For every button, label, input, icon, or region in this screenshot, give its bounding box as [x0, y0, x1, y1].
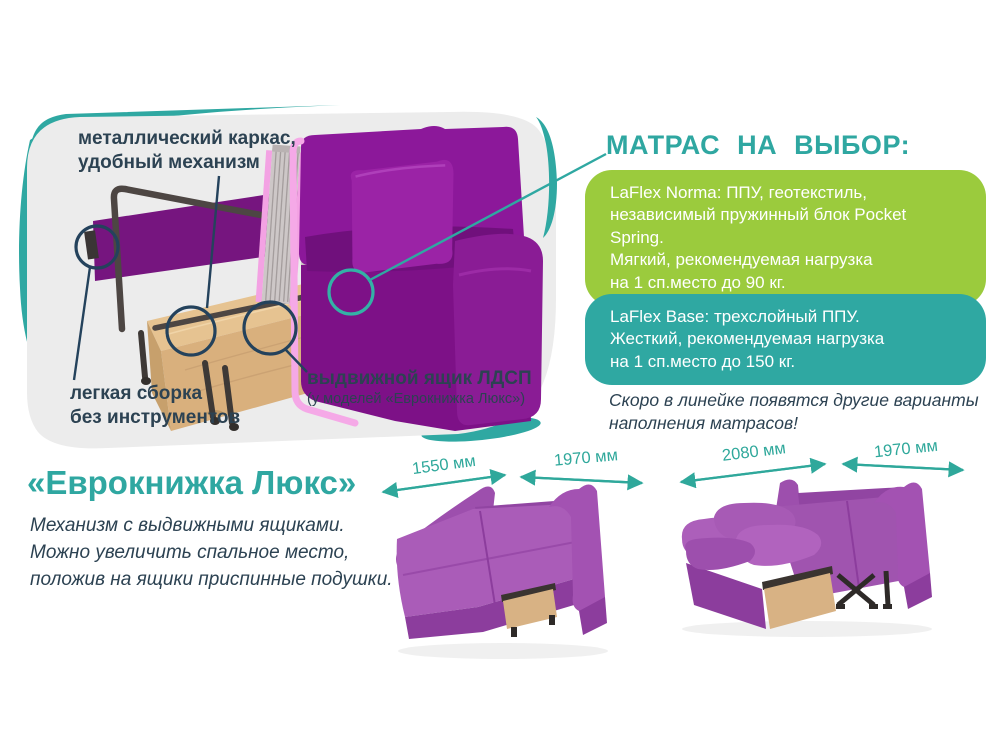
sofa-infographic: металлический каркас, удобный механизм л… [0, 0, 1000, 750]
sofa-folded-photo [383, 477, 668, 669]
sofa-extended-photo [652, 477, 987, 672]
dimension-arrow-1970-right [843, 464, 963, 470]
